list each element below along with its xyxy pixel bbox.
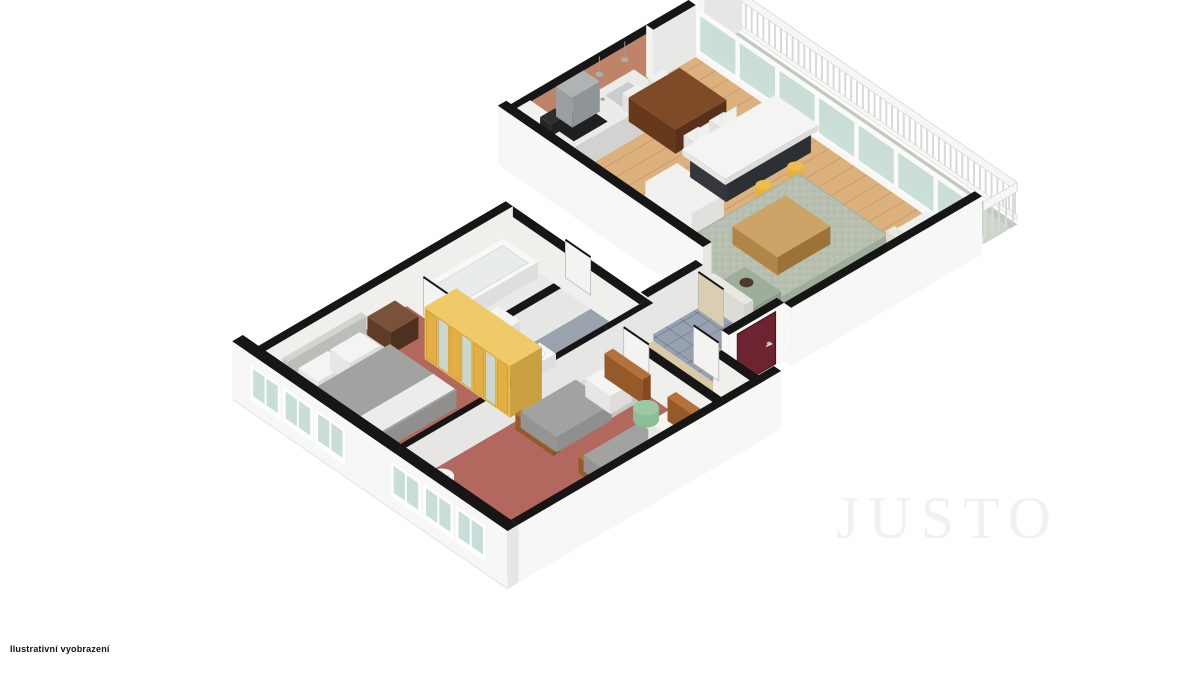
- floorplan-canvas: JUSTO Ilustrativní vyobrazení: [0, 0, 1200, 675]
- disclaimer-text: Ilustrativní vyobrazení: [10, 644, 110, 654]
- floorplan-3d-render: [0, 0, 1200, 675]
- pouf: [633, 400, 659, 428]
- justo-watermark: JUSTO: [836, 484, 1060, 553]
